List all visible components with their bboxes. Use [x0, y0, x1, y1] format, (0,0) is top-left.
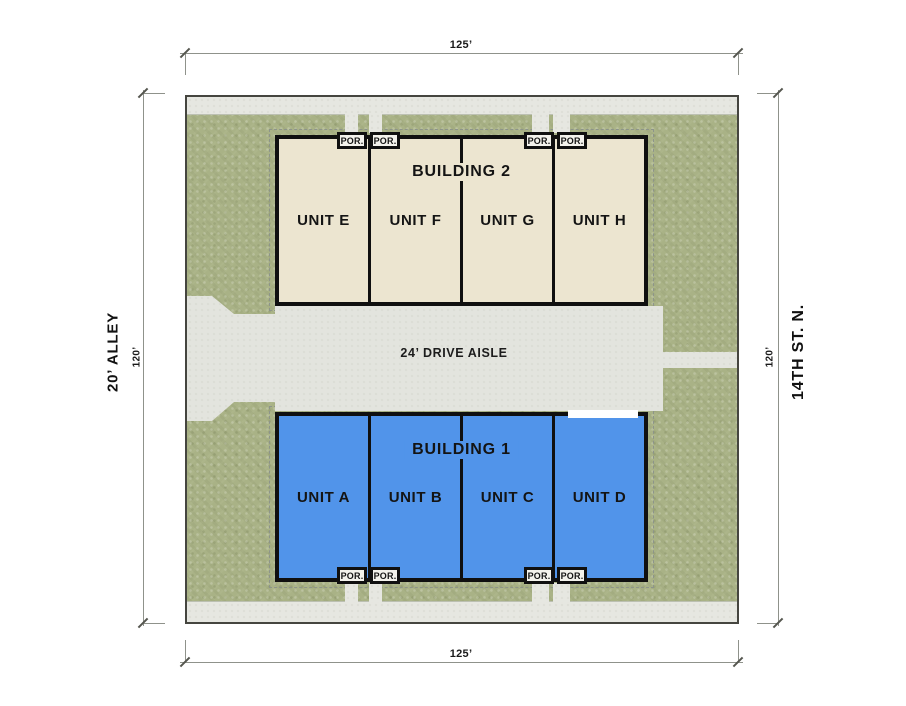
south-sidewalk — [187, 601, 737, 622]
porch-unit-e: POR. — [337, 132, 367, 149]
walkway-path — [369, 113, 382, 133]
unit-g-label: UNIT G — [480, 212, 534, 229]
unit-d-label: UNIT D — [573, 489, 627, 506]
walkway-path — [532, 113, 549, 133]
walkway-path — [553, 583, 570, 603]
unit-h-label: UNIT H — [573, 212, 627, 229]
building-1: BUILDING 1 UNIT A UNIT B UNIT C UNIT D — [275, 412, 648, 582]
extension-line — [185, 53, 186, 75]
site-parcel: 24’ DRIVE AISLE BUILDING 2 UNIT E UNIT F… — [185, 95, 739, 624]
dimension-right-label: 120’ — [765, 347, 776, 368]
porch-label: POR. — [561, 571, 584, 581]
unit-a: UNIT A — [279, 416, 368, 578]
extension-line — [143, 93, 165, 94]
dimension-bottom-label: 125’ — [450, 648, 473, 660]
walkway-path — [345, 583, 358, 603]
porch-label: POR. — [374, 571, 397, 581]
porch-label: POR. — [341, 136, 364, 146]
dimension-line-left — [143, 90, 144, 626]
walkway-path — [345, 113, 358, 133]
porch-label: POR. — [341, 571, 364, 581]
porch-label: POR. — [561, 136, 584, 146]
dimension-line-bottom — [180, 662, 743, 663]
dimension-left-label: 120’ — [132, 347, 143, 368]
unit-h: UNIT H — [552, 139, 644, 302]
porch-unit-d: POR. — [557, 567, 587, 584]
porch-label: POR. — [528, 136, 551, 146]
porch-label: POR. — [528, 571, 551, 581]
building-2-name: BUILDING 2 — [404, 163, 519, 181]
walkway-path — [369, 583, 382, 603]
dimension-top-label: 125’ — [450, 39, 473, 51]
unit-b-label: UNIT B — [389, 489, 443, 506]
dimension-line-right — [778, 90, 779, 626]
extension-line — [143, 623, 165, 624]
street-name-label: 14TH ST. N. — [790, 304, 808, 400]
porch-unit-b: POR. — [370, 567, 400, 584]
unit-e: UNIT E — [279, 139, 368, 302]
alley-street-label: 20’ ALLEY — [105, 312, 122, 392]
building-1-name: BUILDING 1 — [404, 441, 519, 459]
building-2: BUILDING 2 UNIT E UNIT F UNIT G UNIT H — [275, 135, 648, 306]
site-plan-canvas: 24’ DRIVE AISLE BUILDING 2 UNIT E UNIT F… — [0, 0, 906, 706]
unit-a-label: UNIT A — [297, 489, 350, 506]
extension-line — [738, 53, 739, 75]
unit-f-label: UNIT F — [390, 212, 442, 229]
porch-unit-g: POR. — [524, 132, 554, 149]
unit-c-label: UNIT C — [481, 489, 535, 506]
porch-unit-a: POR. — [337, 567, 367, 584]
porch-unit-h: POR. — [557, 132, 587, 149]
porch-label: POR. — [374, 136, 397, 146]
unit-d: UNIT D — [552, 416, 644, 578]
unit-d-driveway-opening — [568, 410, 638, 418]
porch-unit-c: POR. — [524, 567, 554, 584]
unit-e-label: UNIT E — [297, 212, 350, 229]
drive-aisle-label: 24’ DRIVE AISLE — [400, 346, 507, 360]
north-sidewalk — [187, 97, 737, 115]
walkway-path — [553, 113, 570, 133]
dimension-line-top — [180, 53, 743, 54]
porch-unit-f: POR. — [370, 132, 400, 149]
walkway-path — [532, 583, 549, 603]
